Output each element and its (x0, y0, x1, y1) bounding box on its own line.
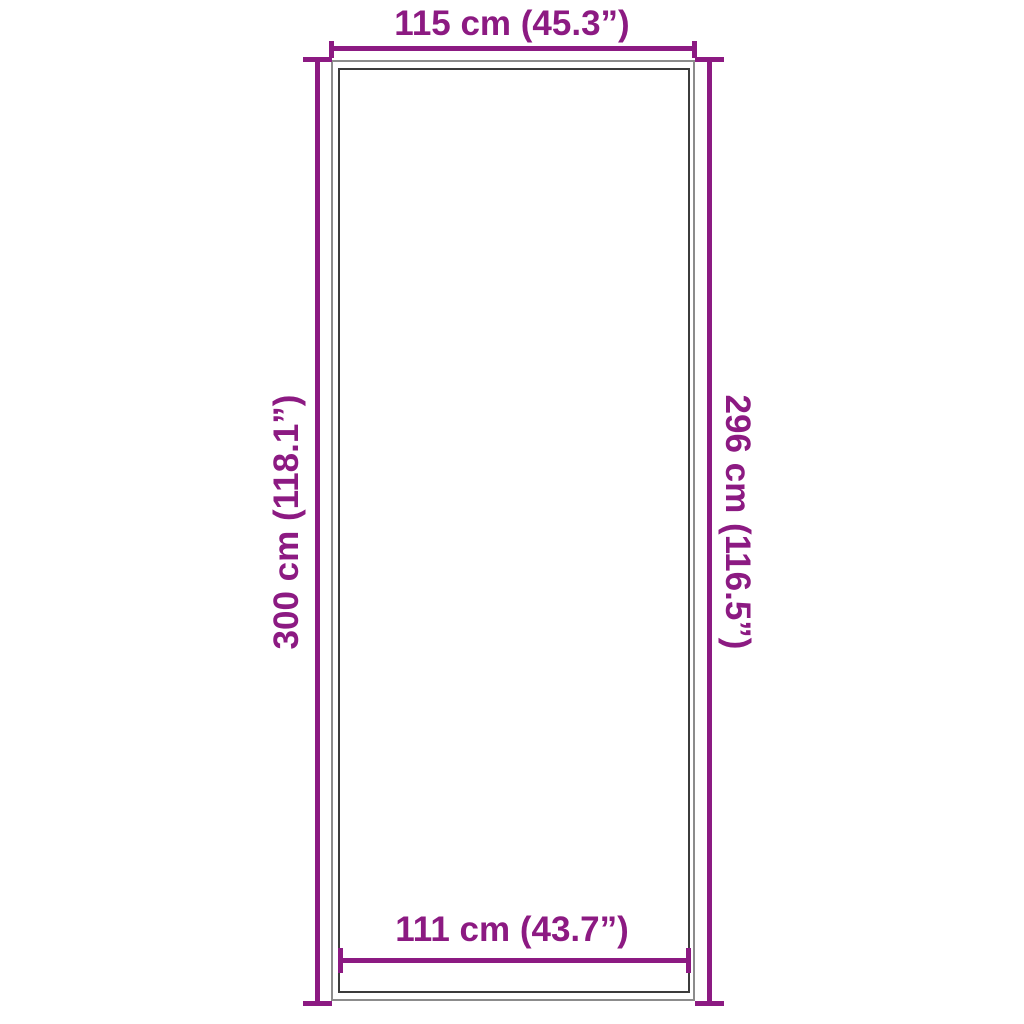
dimension-label-top: 115 cm (45.3”) (312, 4, 712, 44)
dimension-line-bottom (340, 958, 689, 963)
dimension-diagram: 115 cm (45.3”) 300 cm (118.1”) 296 cm (1… (0, 0, 1024, 1024)
dimension-line-top (329, 46, 697, 51)
dimension-label-bottom: 111 cm (43.7”) (312, 910, 712, 950)
dimension-tick (303, 1001, 332, 1006)
dimension-line-right (707, 57, 712, 1006)
object-outline-inner (338, 68, 690, 993)
dimension-line-left (315, 57, 320, 1006)
dimension-tick (695, 57, 724, 62)
dimension-tick (686, 948, 691, 973)
dimension-tick (338, 948, 343, 973)
dimension-tick (695, 1001, 724, 1006)
dimension-label-left: 300 cm (118.1”) (267, 322, 307, 722)
dimension-tick (303, 57, 332, 62)
dimension-label-right: 296 cm (116.5”) (717, 322, 757, 722)
